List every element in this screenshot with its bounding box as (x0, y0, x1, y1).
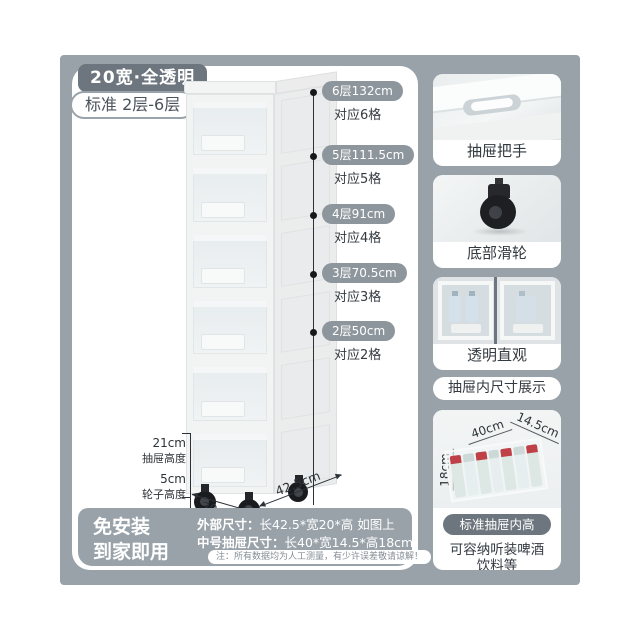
product-infographic: 20宽·全透明 标准 2层-6层 6层132cm 对应6格 5层111.5cm … (0, 0, 640, 640)
feature-caption: 底部滑轮 (433, 242, 561, 263)
height-marker-note: 对应4格 (334, 227, 381, 246)
cans-in-drawer-photo: 40cm 14.5cm 18cm (433, 410, 561, 508)
caster-wheel-photo (433, 175, 561, 242)
mini-handle-icon (451, 324, 481, 333)
outer-dimensions-row: 外部尺寸：长42.5*宽20*高 如图上 (197, 514, 395, 533)
drawer-dimensions-row: 中号抽屉尺寸：长40*宽14.5*高18cm (197, 532, 413, 551)
drawer-module-side (275, 350, 336, 426)
drawer-height-value: 21cm (134, 436, 186, 450)
measurement-note: 注：所有数据均为人工测量，有少许误差敬请谅解！ (208, 550, 431, 564)
drawer-handle-photo (433, 74, 561, 140)
slogan-line-2: 到家即用 (93, 537, 169, 564)
layers-badge: 标准 2层-6层 (70, 91, 195, 119)
drawer-divider (494, 277, 497, 344)
measure-dot (310, 271, 317, 278)
height-marker-pill: 6层132cm (322, 81, 403, 101)
height-marker-pill: 4层91cm (322, 204, 395, 224)
drawer-module-side (275, 218, 336, 294)
bottle-icon (449, 296, 461, 322)
drawer-with-cans-icon (444, 437, 548, 502)
tower-lid-front (184, 81, 276, 94)
feature-caption: 抽屉把手 (433, 140, 561, 161)
transparent-drawers-photo (433, 277, 561, 344)
drawer-module (187, 161, 273, 227)
caster-wheel-icon (480, 195, 516, 229)
height-marker-pill: 3层70.5cm (322, 263, 407, 283)
inner-size-section-title: 抽屉内尺寸展示 (433, 377, 561, 400)
outer-dimensions-label: 外部尺寸： (197, 517, 260, 532)
measure-dot (310, 89, 317, 96)
drawer-module (187, 228, 273, 294)
handle-bar-icon (471, 97, 514, 111)
inner-height-badge: 标准抽屉内高18cm (443, 514, 551, 535)
drawer-module (187, 360, 273, 426)
measure-tick (182, 433, 191, 434)
height-marker-pill: 5层111.5cm (322, 145, 414, 165)
drawer-module (187, 427, 273, 493)
feature-caption: 透明直观 (433, 344, 561, 365)
drawer-module (187, 294, 273, 360)
mini-handle-icon (513, 324, 543, 333)
outer-dimensions-value: 长42.5*宽20*高 如图上 (260, 517, 395, 532)
measure-dot (310, 212, 317, 219)
bottle-icon (466, 296, 478, 322)
measure-dot (310, 153, 317, 160)
capacity-caption-2: 饮料等 (433, 554, 561, 570)
height-marker-note: 对应5格 (334, 168, 381, 187)
feature-card-wheel: 底部滑轮 (433, 175, 561, 268)
slogan-line-1: 免安装 (93, 512, 150, 539)
height-marker-note: 对应2格 (334, 344, 381, 363)
inner-length-label: 40cm (464, 415, 512, 445)
measure-dot (310, 329, 317, 336)
feature-card-transparent: 透明直观 (433, 277, 561, 370)
footer-band: 免安装 到家即用 外部尺寸：长42.5*宽20*高 如图上 中号抽屉尺寸：长40… (78, 508, 412, 566)
mini-drawer-icon (438, 281, 493, 340)
feature-card-handle: 抽屉把手 (433, 74, 561, 166)
drawer-module (187, 95, 273, 161)
wheel-height-value: 5cm (134, 472, 186, 486)
drawer-dimensions-label: 中号抽屉尺寸： (197, 535, 285, 550)
mini-drawer-icon (500, 281, 555, 340)
drawer-height-label: 抽屉高度 (126, 450, 186, 466)
drawer-front-slab (433, 111, 561, 140)
height-marker-note: 对应6格 (334, 104, 381, 123)
inner-size-card: 40cm 14.5cm 18cm 标准抽屉内高18cm 可容纳听装啤酒 饮料等 (433, 410, 561, 570)
wheel-height-label: 轮子高度 (126, 486, 186, 502)
height-marker-note: 对应3格 (334, 286, 381, 305)
tower-front-face (186, 94, 274, 494)
height-marker-pill: 2层50cm (322, 321, 395, 341)
bottle-icon (516, 296, 536, 322)
drawer-dimensions-value: 长40*宽14.5*高18cm (285, 535, 414, 550)
